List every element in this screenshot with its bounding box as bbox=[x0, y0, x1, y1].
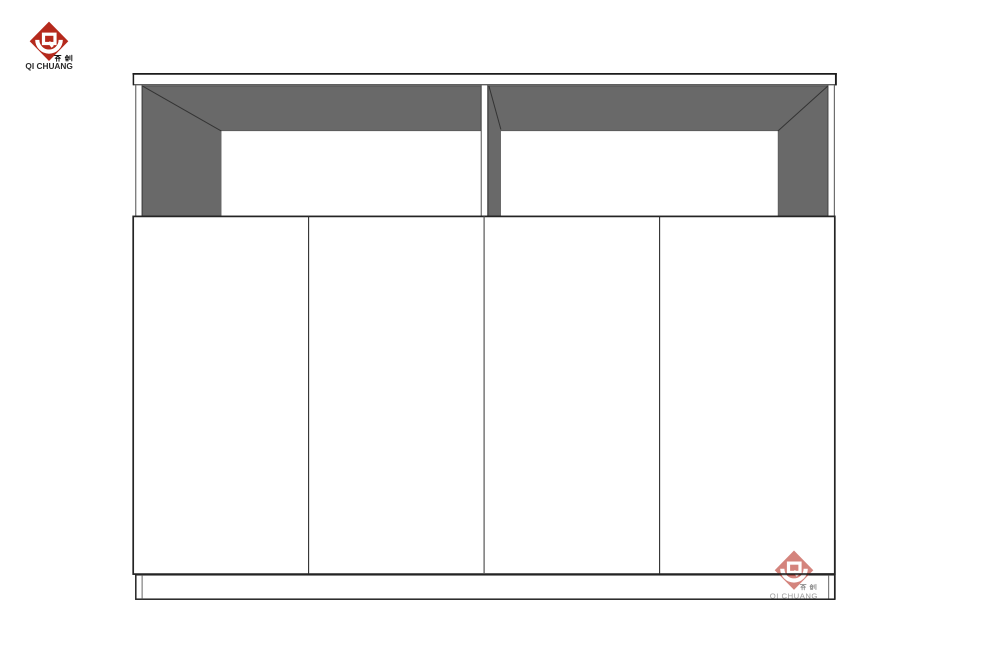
svg-text:QI CHUANG: QI CHUANG bbox=[25, 61, 72, 71]
